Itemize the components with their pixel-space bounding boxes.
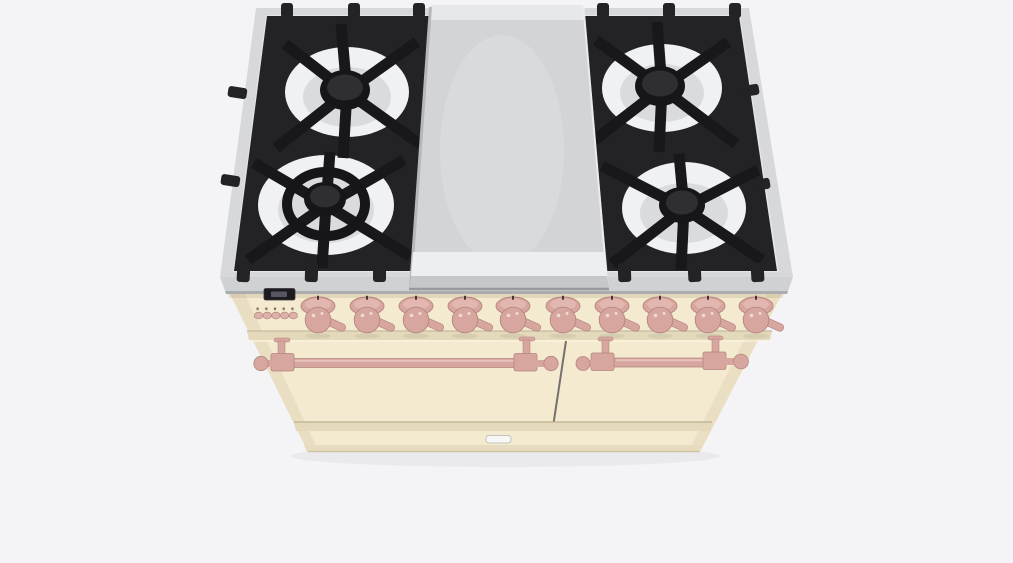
grate-finger: [663, 3, 675, 18]
bottom-latch: [486, 436, 511, 444]
grate-finger: [373, 263, 386, 282]
grate-finger: [751, 263, 765, 283]
render-canvas: [0, 0, 1013, 563]
kick-groove: [294, 422, 712, 431]
grate-finger: [618, 263, 632, 282]
control-buttons: [254, 312, 297, 319]
grate-finger: [281, 3, 293, 18]
panel-button: [272, 312, 280, 319]
grate-finger: [597, 3, 609, 18]
handle-collar: [703, 352, 726, 370]
grate-finger: [236, 263, 250, 283]
handle-ball-end: [544, 356, 558, 370]
griddle-back-lip: [429, 5, 585, 20]
griddle-plate: [409, 5, 609, 289]
handle-collar: [514, 354, 537, 372]
grate-finger: [348, 3, 360, 18]
grate-finger: [688, 263, 702, 283]
cooktop: [220, 3, 793, 294]
handle-post: [523, 340, 530, 354]
handle-ball-end: [734, 354, 749, 369]
panel-button: [254, 312, 262, 319]
panel-button: [263, 312, 271, 319]
cooktop-rim-edge: [225, 291, 788, 294]
grate-finger: [729, 3, 741, 18]
grate-finger: [305, 263, 319, 282]
handle-post: [712, 339, 719, 353]
panel-button: [280, 312, 288, 319]
range-cooker: [0, 0, 1013, 563]
clock-display-glow: [271, 292, 287, 298]
handle-post: [278, 341, 285, 355]
handle-ball-end: [576, 357, 590, 371]
griddle-front-face: [409, 276, 609, 289]
handle-collar: [271, 354, 294, 372]
handle-post: [602, 340, 609, 354]
handle-collar: [591, 353, 614, 371]
griddle-front-band: [411, 252, 607, 276]
grate-finger: [413, 3, 425, 18]
handle-neck: [725, 358, 734, 365]
handle-ball-end: [254, 356, 268, 370]
panel-button: [289, 312, 297, 319]
